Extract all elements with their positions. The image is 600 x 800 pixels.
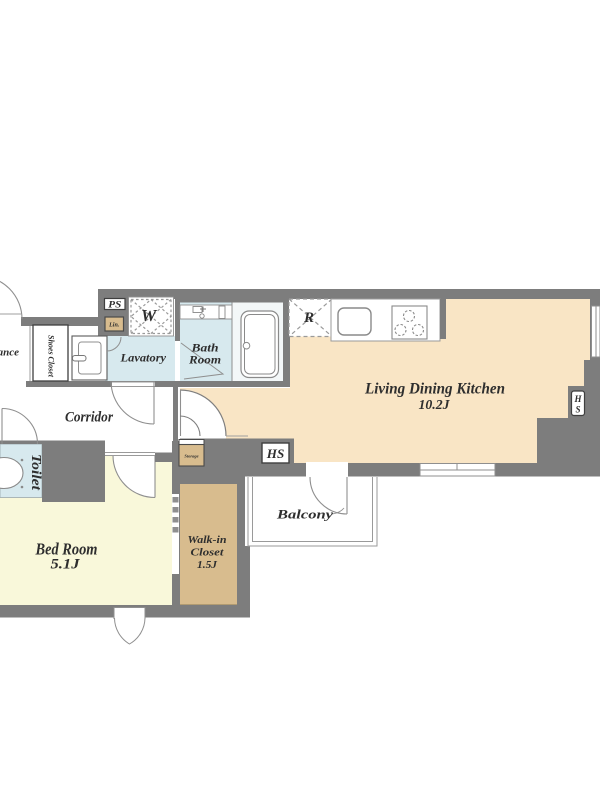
svg-text:HS: HS	[266, 446, 285, 461]
svg-text:H: H	[573, 394, 582, 404]
svg-text:1.5J: 1.5J	[197, 560, 218, 571]
svg-text:Lavatory: Lavatory	[120, 351, 167, 365]
svg-text:Toilet: Toilet	[29, 454, 44, 491]
svg-text:Room: Room	[188, 353, 221, 367]
svg-text:Living Dining Kitchen: Living Dining Kitchen	[364, 381, 505, 398]
svg-text:Storage: Storage	[184, 454, 198, 459]
svg-text:Entrance: Entrance	[0, 347, 19, 359]
svg-text:S: S	[575, 405, 580, 415]
svg-text:Lin.: Lin.	[108, 323, 120, 329]
svg-text:Closet: Closet	[191, 548, 225, 559]
svg-text:Corridor: Corridor	[65, 410, 113, 426]
svg-text:W: W	[141, 306, 158, 325]
svg-text:Shoes Closet: Shoes Closet	[47, 335, 57, 378]
svg-text:Balcony: Balcony	[276, 507, 334, 522]
svg-text:Walk-in: Walk-in	[188, 535, 227, 546]
svg-text:R: R	[303, 310, 314, 326]
svg-text:PS: PS	[108, 301, 121, 311]
svg-text:5.1J: 5.1J	[51, 557, 81, 573]
svg-text:10.2J: 10.2J	[419, 397, 451, 412]
